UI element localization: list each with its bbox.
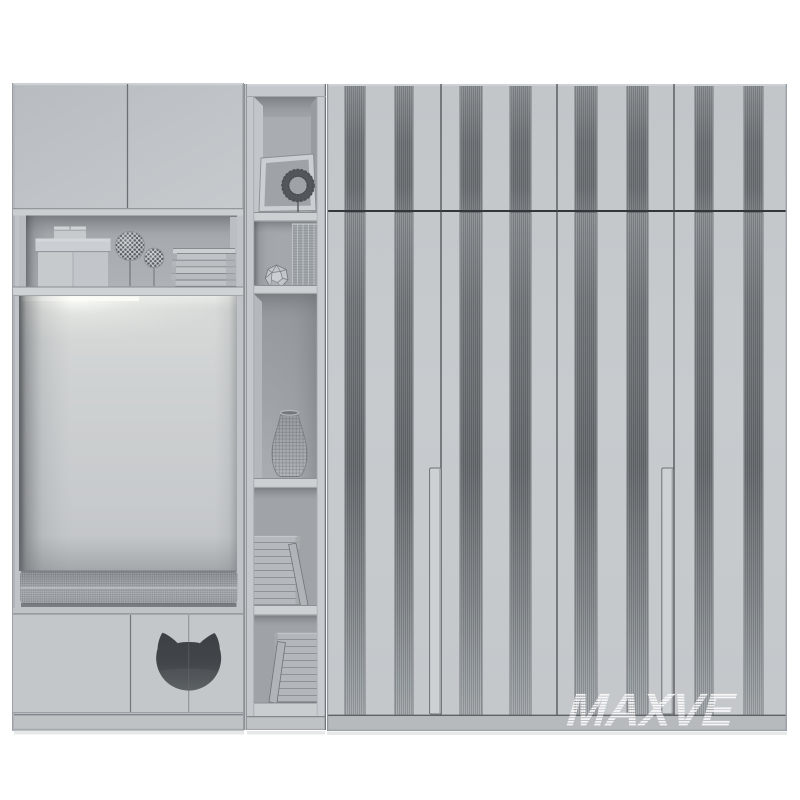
svg-text:MAXVE: MAXVE [565,683,740,737]
